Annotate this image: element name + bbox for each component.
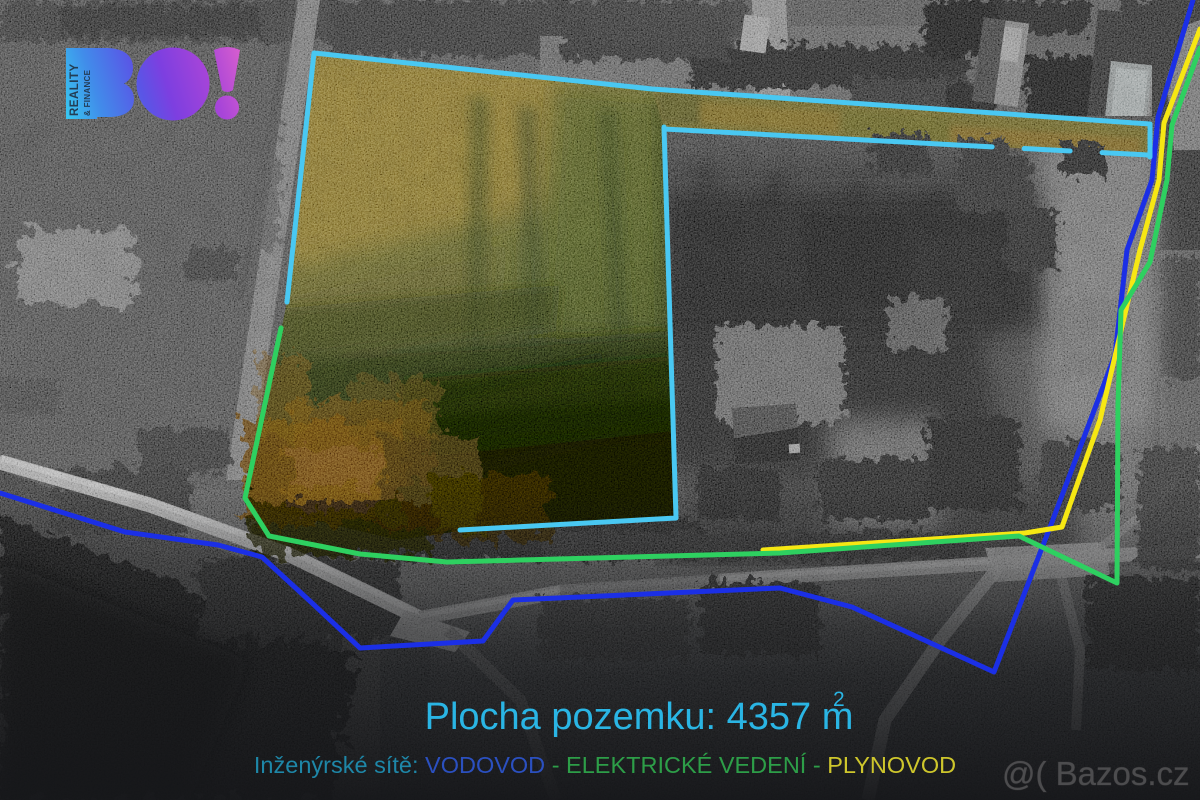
svg-text:2: 2 (833, 688, 845, 711)
svg-text:Inženýrské sítě: VODOVOD - EL: Inženýrské sítě: VODOVOD - ELEKTRICKÉ VE… (254, 752, 956, 778)
svg-text:Plocha pozemku: 4357 m: Plocha pozemku: 4357 m (425, 696, 854, 738)
svg-text:REALITY: REALITY (69, 63, 81, 116)
svg-text:& FINANCE: & FINANCE (83, 69, 92, 116)
svg-text:@( Bazos.cz: @( Bazos.cz (1002, 755, 1190, 792)
